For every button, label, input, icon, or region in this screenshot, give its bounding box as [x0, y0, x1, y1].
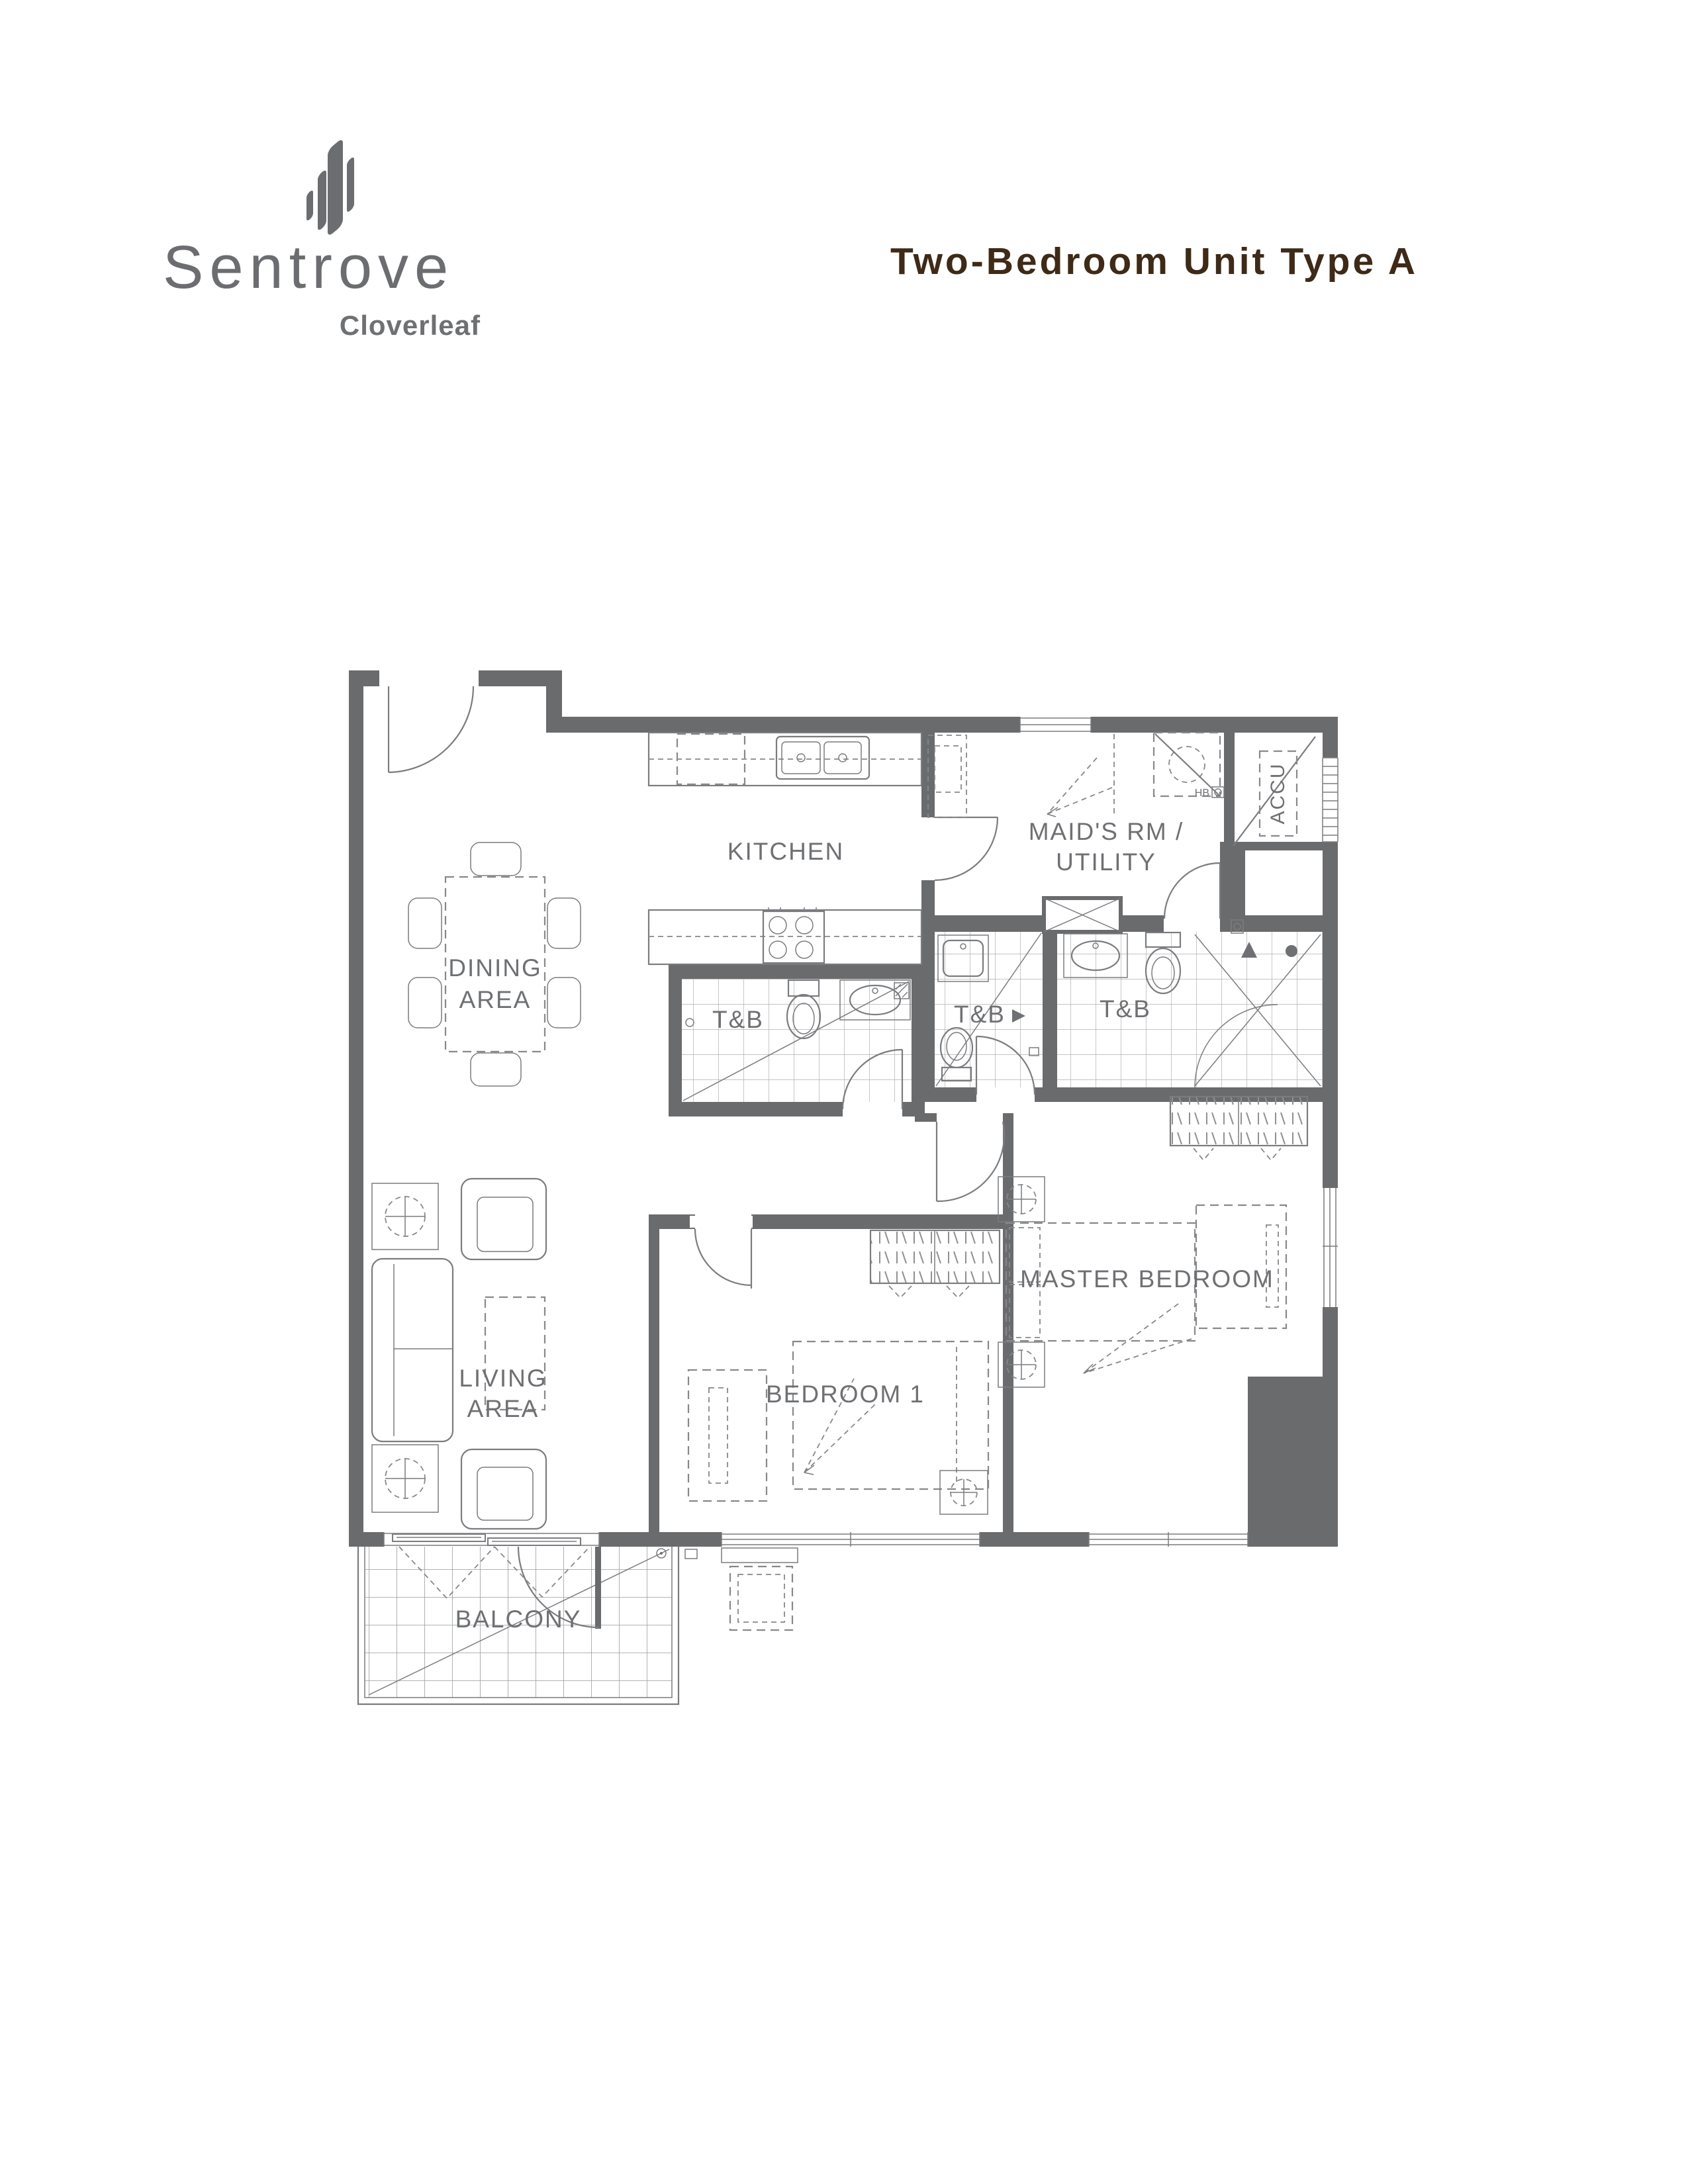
structural-column [1248, 1377, 1338, 1547]
room-label-maids-line1: MAID'S RM / [1029, 818, 1184, 845]
maid-room-door [935, 817, 998, 880]
bedroom1-door [690, 1216, 753, 1289]
bedroom-1: BEDROOM 1 [688, 1230, 1000, 1514]
room-label-living-line1: LIVING [459, 1365, 547, 1392]
washing-machine-icon: HB [1154, 733, 1224, 799]
maid-room-window [1020, 717, 1091, 733]
brand-subname: Cloverleaf [163, 310, 481, 341]
armchair [461, 1449, 546, 1529]
sofa [372, 1259, 453, 1441]
master-tb-door [1164, 863, 1220, 919]
dining-area: DINING AREA [408, 842, 581, 1086]
coffee-table [485, 1297, 545, 1410]
room-label-living-line2: AREA [467, 1395, 539, 1422]
nightstand-lamp [940, 1471, 988, 1514]
room-label-tb-middle: T&B [954, 1001, 1006, 1028]
dining-chair [471, 1053, 521, 1086]
room-label-tb-common: T&B [712, 1006, 764, 1033]
floor-plan-drawing: KITCHEN DINING AREA [341, 652, 1347, 1724]
entry-door [379, 669, 479, 772]
accu-louver-window [1323, 758, 1338, 842]
kitchen-sink-icon [776, 737, 869, 779]
stove-icon [763, 907, 824, 963]
room-label-accu: ACCU [1267, 762, 1289, 824]
side-table-lamp [372, 1445, 438, 1512]
bed [793, 1342, 988, 1489]
sentrove-logo-icon [291, 136, 377, 245]
tiled-floors [365, 932, 1323, 1698]
room-label-dining-line1: DINING [448, 954, 542, 981]
swing-arrow [1047, 758, 1112, 817]
page-title: Two-Bedroom Unit Type A [890, 240, 1418, 283]
living-area: LIVING AREA [372, 1179, 547, 1529]
brochure-page: Sentrove Cloverleaf Two-Bedroom Unit Typ… [0, 0, 1688, 2184]
vent-shaft [1044, 898, 1121, 932]
dining-chair [408, 898, 442, 948]
wardrobe-dashed [688, 1370, 767, 1501]
accu-ledge: ACCU [1233, 737, 1315, 846]
room-label-master-bedroom: MASTER BEDROOM [1020, 1265, 1274, 1293]
dining-chair [547, 978, 581, 1028]
room-label-kitchen: KITCHEN [727, 838, 844, 865]
hose-bib-label: HB [1195, 788, 1209, 799]
room-label-dining-line2: AREA [459, 986, 532, 1013]
master-tb-floor [1057, 932, 1323, 1087]
shower-marker-dot [1286, 945, 1297, 957]
outlet-box [685, 1549, 697, 1559]
ac-condenser-unit [722, 1548, 798, 1630]
master-bedroom-door [937, 1122, 1004, 1201]
kitchen-lower-counter [649, 910, 921, 964]
maids-room: HB MAID'S RM / UTILITY [928, 733, 1224, 876]
brand-name: Sentrove [163, 233, 494, 302]
bed [1006, 1223, 1195, 1373]
side-table-lamp [372, 1183, 438, 1250]
room-label-maids-line2: UTILITY [1056, 848, 1156, 876]
kitchen: KITCHEN [649, 733, 921, 964]
room-label-tb-master: T&B [1100, 995, 1151, 1023]
dining-chair [547, 898, 581, 948]
dining-chair [471, 842, 521, 876]
room-label-balcony: BALCONY [455, 1606, 582, 1633]
master-bedroom-window [1089, 1532, 1248, 1547]
master-bedroom: MASTER BEDROOM [998, 1097, 1307, 1387]
dining-chair [408, 978, 442, 1028]
closet [1170, 1097, 1307, 1160]
master-bedroom-side-window [1323, 1188, 1338, 1307]
armchair [461, 1179, 546, 1259]
bedroom1-window [722, 1532, 980, 1547]
floor-plan: KITCHEN DINING AREA [341, 652, 1347, 1724]
wardrobe [870, 1230, 1000, 1298]
room-label-bedroom1: BEDROOM 1 [766, 1381, 925, 1408]
